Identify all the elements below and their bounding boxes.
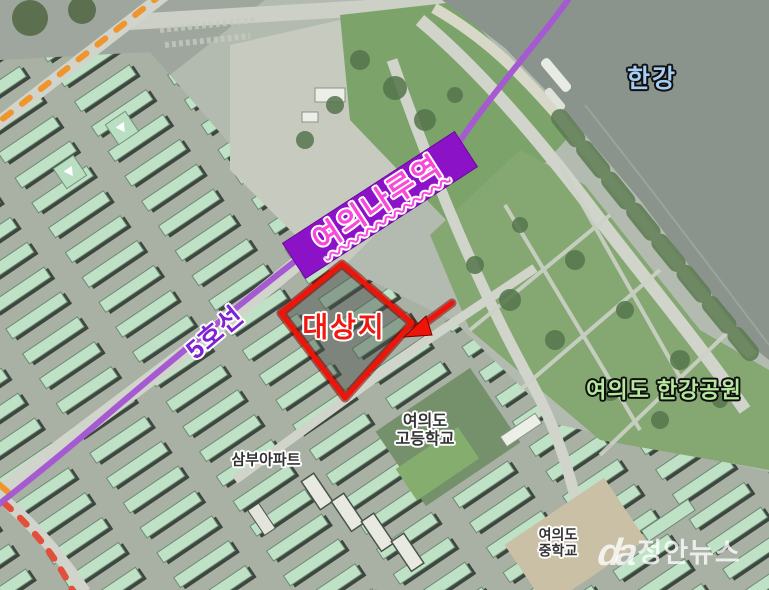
plaza-building: [302, 112, 318, 122]
aerial-map: [0, 0, 769, 590]
trees: [12, 0, 48, 36]
news-map-image: 여의나루역 5호선 대상지 한강 여의도 한강공원 여의도 고등학교 삼부아파트…: [0, 0, 769, 590]
